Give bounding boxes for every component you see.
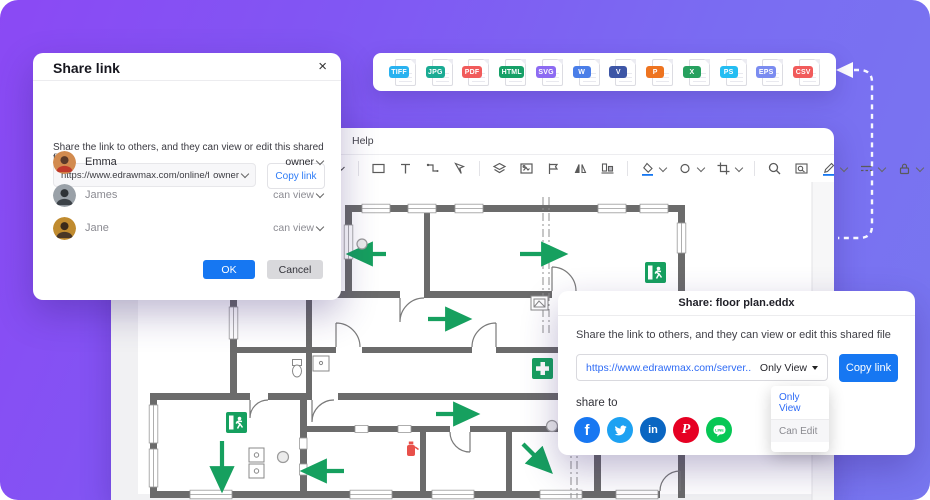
format-icon-html: HTML [499, 58, 526, 86]
format-label-badge: P [646, 66, 664, 78]
cancel-button[interactable]: Cancel [267, 260, 323, 279]
user-name: Jane [85, 222, 273, 234]
chevron-down-icon [316, 190, 324, 198]
format-icon-jpg: JPG [426, 58, 453, 86]
shower-symbol [313, 356, 329, 371]
format-icon-ps: PS [720, 58, 747, 86]
share-link-input[interactable]: https://www.edrawmax.com/server.. Only V… [576, 354, 828, 381]
format-icon-eps: EPS [756, 58, 783, 86]
format-icon-p: P [646, 58, 673, 86]
format-label-badge: PS [720, 66, 738, 78]
format-label-badge: W [573, 66, 591, 78]
pen-style-icon[interactable] [821, 161, 847, 176]
dialog-description: Share the link to others, and they can v… [576, 329, 896, 341]
format-label-badge: X [683, 66, 701, 78]
share-to-label: share to [576, 397, 618, 409]
dropdown-option-only-view[interactable]: Only View [771, 386, 829, 420]
find-replace-icon[interactable] [794, 161, 809, 176]
connector-tool-icon[interactable] [425, 161, 440, 176]
lamp-symbol [357, 239, 367, 249]
chevron-down-icon [316, 223, 324, 231]
format-label-badge: TIFF [389, 66, 410, 78]
menu-help[interactable]: Help [352, 135, 374, 147]
format-icon-v: V [609, 58, 636, 86]
chevron-down-icon [316, 157, 324, 165]
share-linkedin-icon[interactable]: in [640, 417, 666, 443]
user-permission-select[interactable]: owner [285, 156, 314, 168]
permission-dropdown[interactable]: Only View [760, 362, 818, 374]
zoom-icon[interactable] [767, 161, 782, 176]
user-name: James [85, 189, 273, 201]
format-label-badge: PDF [462, 66, 482, 78]
user-row-emma: Emma owner [53, 149, 323, 175]
mirror-icon[interactable] [573, 161, 588, 176]
format-icon-csv: CSV [793, 58, 820, 86]
user-row-james: James can view [53, 182, 323, 208]
format-icon-x: X [683, 58, 710, 86]
align-shapes-icon[interactable] [600, 161, 615, 176]
format-label-badge: HTML [499, 66, 524, 78]
format-icon-svg: SVG [536, 58, 563, 86]
lock-icon[interactable] [897, 161, 923, 176]
permission-dropdown-menu: Only View Can Edit [771, 386, 829, 452]
share-facebook-icon[interactable]: f [574, 417, 600, 443]
dropdown-option-can-edit[interactable]: Can Edit [771, 420, 829, 442]
lasso-tool-icon[interactable] [452, 161, 467, 176]
avatar [53, 151, 76, 174]
format-label-badge: EPS [756, 66, 776, 78]
lamp-symbol [278, 452, 289, 463]
share-file-dialog: Share: floor plan.eddx Share the link to… [558, 291, 915, 455]
exit-sign [226, 412, 247, 433]
crop-icon[interactable] [716, 161, 742, 176]
line-style-icon[interactable] [859, 161, 885, 176]
share-pinterest-icon[interactable]: P [673, 417, 699, 443]
link-url-text: https://www.edrawmax.com/server.. [586, 362, 754, 374]
dialog-header: Share: floor plan.eddx [558, 291, 915, 316]
first-aid-sign [532, 358, 553, 379]
toolbar-divider [479, 161, 480, 176]
dialog-header: Share link × [33, 53, 341, 81]
export-format-bar: TIFFJPGPDFHTMLSVGWVPXPSEPSCSV [373, 53, 836, 91]
format-label-badge: JPG [426, 66, 446, 78]
ok-button[interactable]: OK [203, 260, 255, 279]
screenshot-root: Help [0, 0, 930, 500]
kitchen-unit-symbol [249, 448, 264, 462]
user-permission-select[interactable]: can view [273, 222, 314, 234]
toolbar-divider [754, 161, 755, 176]
align-flag-icon[interactable] [546, 161, 561, 176]
copy-link-button[interactable]: Copy link [839, 354, 898, 382]
format-icon-tiff: TIFF [389, 58, 416, 86]
close-icon[interactable]: × [318, 57, 327, 77]
user-row-jane: Jane can view [53, 215, 323, 241]
avatar [53, 217, 76, 240]
toolbar-divider [358, 161, 359, 176]
share-twitter-icon[interactable] [607, 417, 633, 443]
share-link-dialog: Share link × Share the link to others, a… [33, 53, 341, 300]
arrowhead-icon [836, 62, 853, 78]
toolbar-divider [627, 161, 628, 176]
permission-value: Only View [760, 362, 807, 374]
format-icon-pdf: PDF [462, 58, 489, 86]
rectangle-tool-icon[interactable] [371, 161, 386, 176]
insert-image-icon[interactable] [519, 161, 534, 176]
avatar [53, 184, 76, 207]
dialog-title: Share link [53, 60, 120, 76]
user-name: Emma [85, 156, 285, 168]
fill-color-icon[interactable] [640, 161, 666, 176]
format-label-badge: SVG [536, 66, 556, 78]
dialog-title: Share: floor plan.eddx [558, 297, 915, 309]
lamp-symbol [547, 421, 558, 432]
shape-style-icon[interactable] [678, 161, 704, 176]
caret-down-icon [812, 366, 818, 370]
layers-icon[interactable] [492, 161, 507, 176]
format-label-badge: CSV [793, 66, 813, 78]
social-icons-row: f in P LINE [574, 417, 732, 443]
format-icon-w: W [573, 58, 600, 86]
exit-sign [645, 262, 666, 283]
text-tool-icon[interactable] [398, 161, 413, 176]
svg-text:LINE: LINE [715, 428, 724, 432]
share-line-icon[interactable]: LINE [706, 417, 732, 443]
format-label-badge: V [609, 66, 627, 78]
user-permission-select[interactable]: can view [273, 189, 314, 201]
